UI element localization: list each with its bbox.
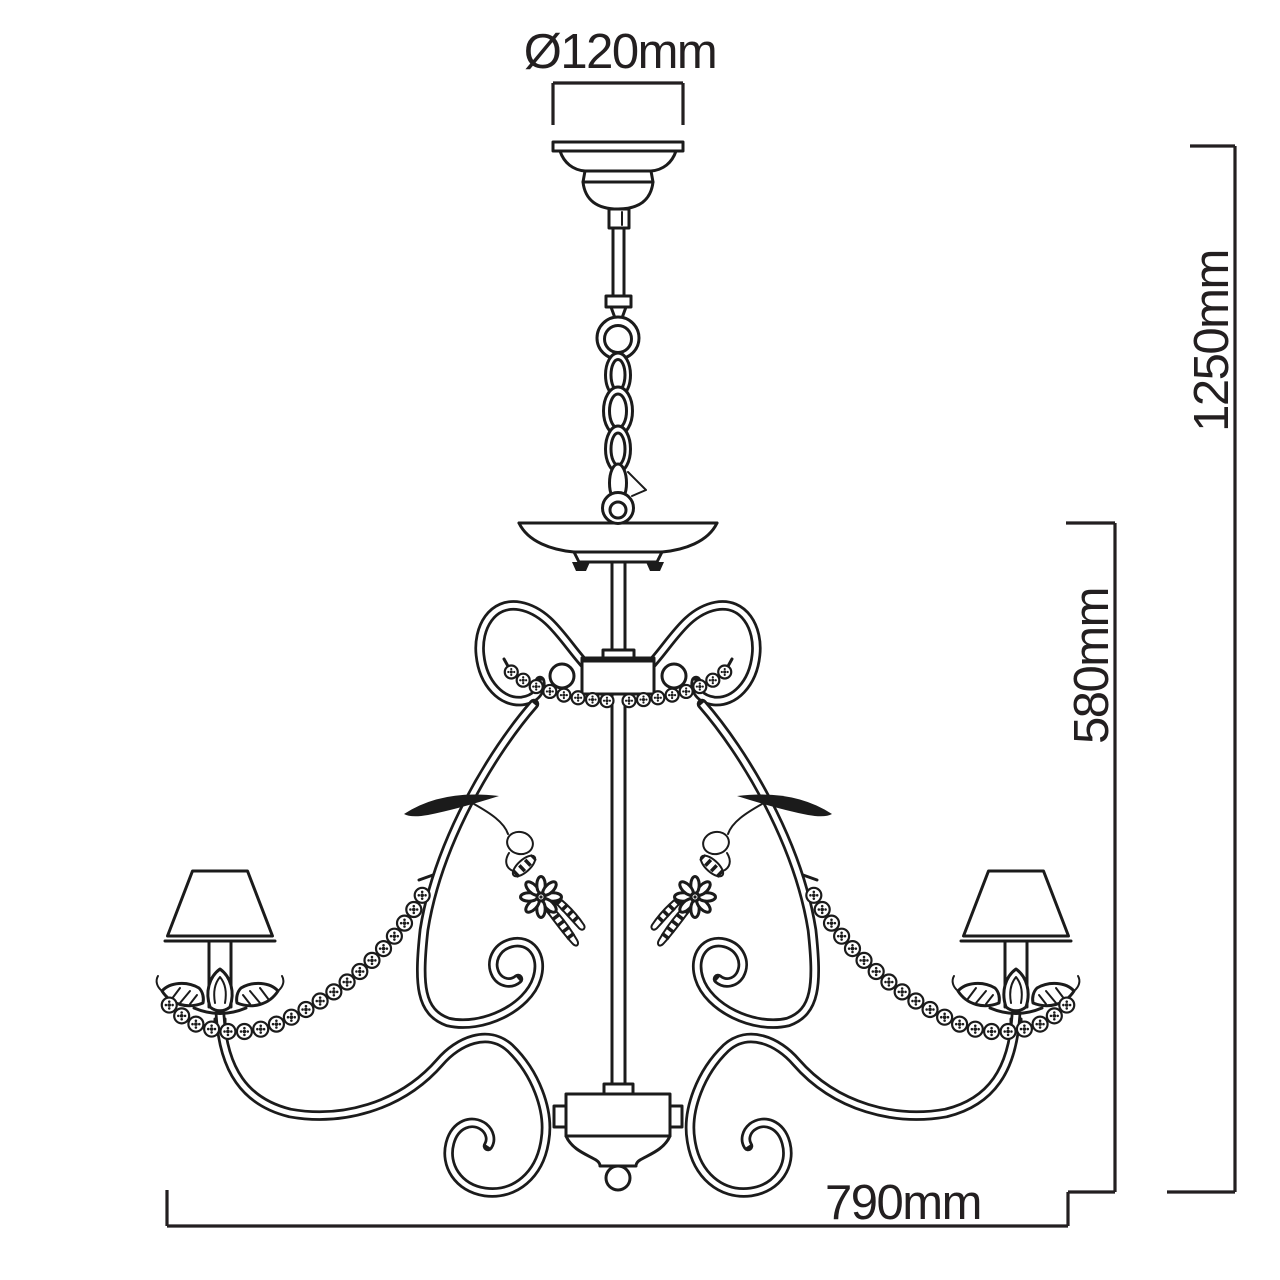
left-half-artwork bbox=[157, 605, 592, 1192]
suspension-rod bbox=[606, 228, 631, 318]
chain bbox=[597, 317, 646, 502]
frame-curve bbox=[421, 704, 539, 1024]
leaf-accent bbox=[404, 794, 499, 816]
center-column bbox=[582, 562, 654, 1094]
canopy-diameter-bracket bbox=[553, 83, 683, 125]
finial-ball bbox=[606, 1166, 630, 1190]
bottom-body bbox=[554, 1094, 682, 1190]
canopy-diameter-label: Ø120mm bbox=[524, 24, 717, 80]
ceiling-canopy bbox=[553, 142, 683, 228]
saucer-canopy bbox=[519, 523, 717, 571]
dimension-drawing: Ø120mm 1250mm 580mm 790mm bbox=[0, 0, 1280, 1280]
flower-rosette bbox=[521, 877, 562, 918]
right-half-artwork bbox=[644, 605, 1079, 1192]
arm bbox=[220, 1014, 546, 1192]
overall-width-label: 790mm bbox=[825, 1175, 981, 1231]
crystal-bead bbox=[550, 664, 574, 688]
overall-height-label: 1250mm bbox=[1184, 250, 1240, 432]
central-assembly bbox=[519, 142, 717, 1190]
body-height-label: 580mm bbox=[1064, 588, 1120, 744]
flower-ornament bbox=[474, 804, 585, 946]
lamp-shade bbox=[165, 871, 275, 941]
chain-end-ball bbox=[610, 502, 626, 518]
